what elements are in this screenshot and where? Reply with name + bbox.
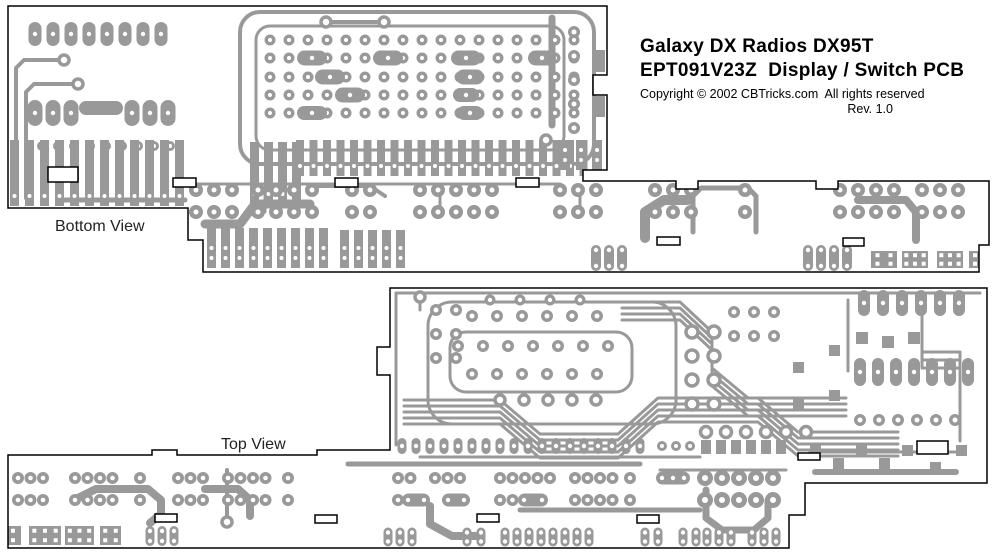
- pcb-diagram: Galaxy DX Radios DX95T EPT091V23Z Displa…: [0, 0, 993, 554]
- top-view-board: [5, 288, 987, 548]
- top-view-label: Top View: [221, 436, 286, 454]
- revision-text: Rev. 1.0: [640, 102, 893, 116]
- page-title: Galaxy DX Radios DX95T: [640, 36, 874, 58]
- page-subtitle: EPT091V23Z Display / Switch PCB: [640, 60, 964, 82]
- copyright-text: Copyright © 2002 CBTricks.com All rights…: [640, 87, 925, 101]
- pcb-artwork: [0, 0, 993, 554]
- bottom-view-label: Bottom View: [55, 218, 145, 236]
